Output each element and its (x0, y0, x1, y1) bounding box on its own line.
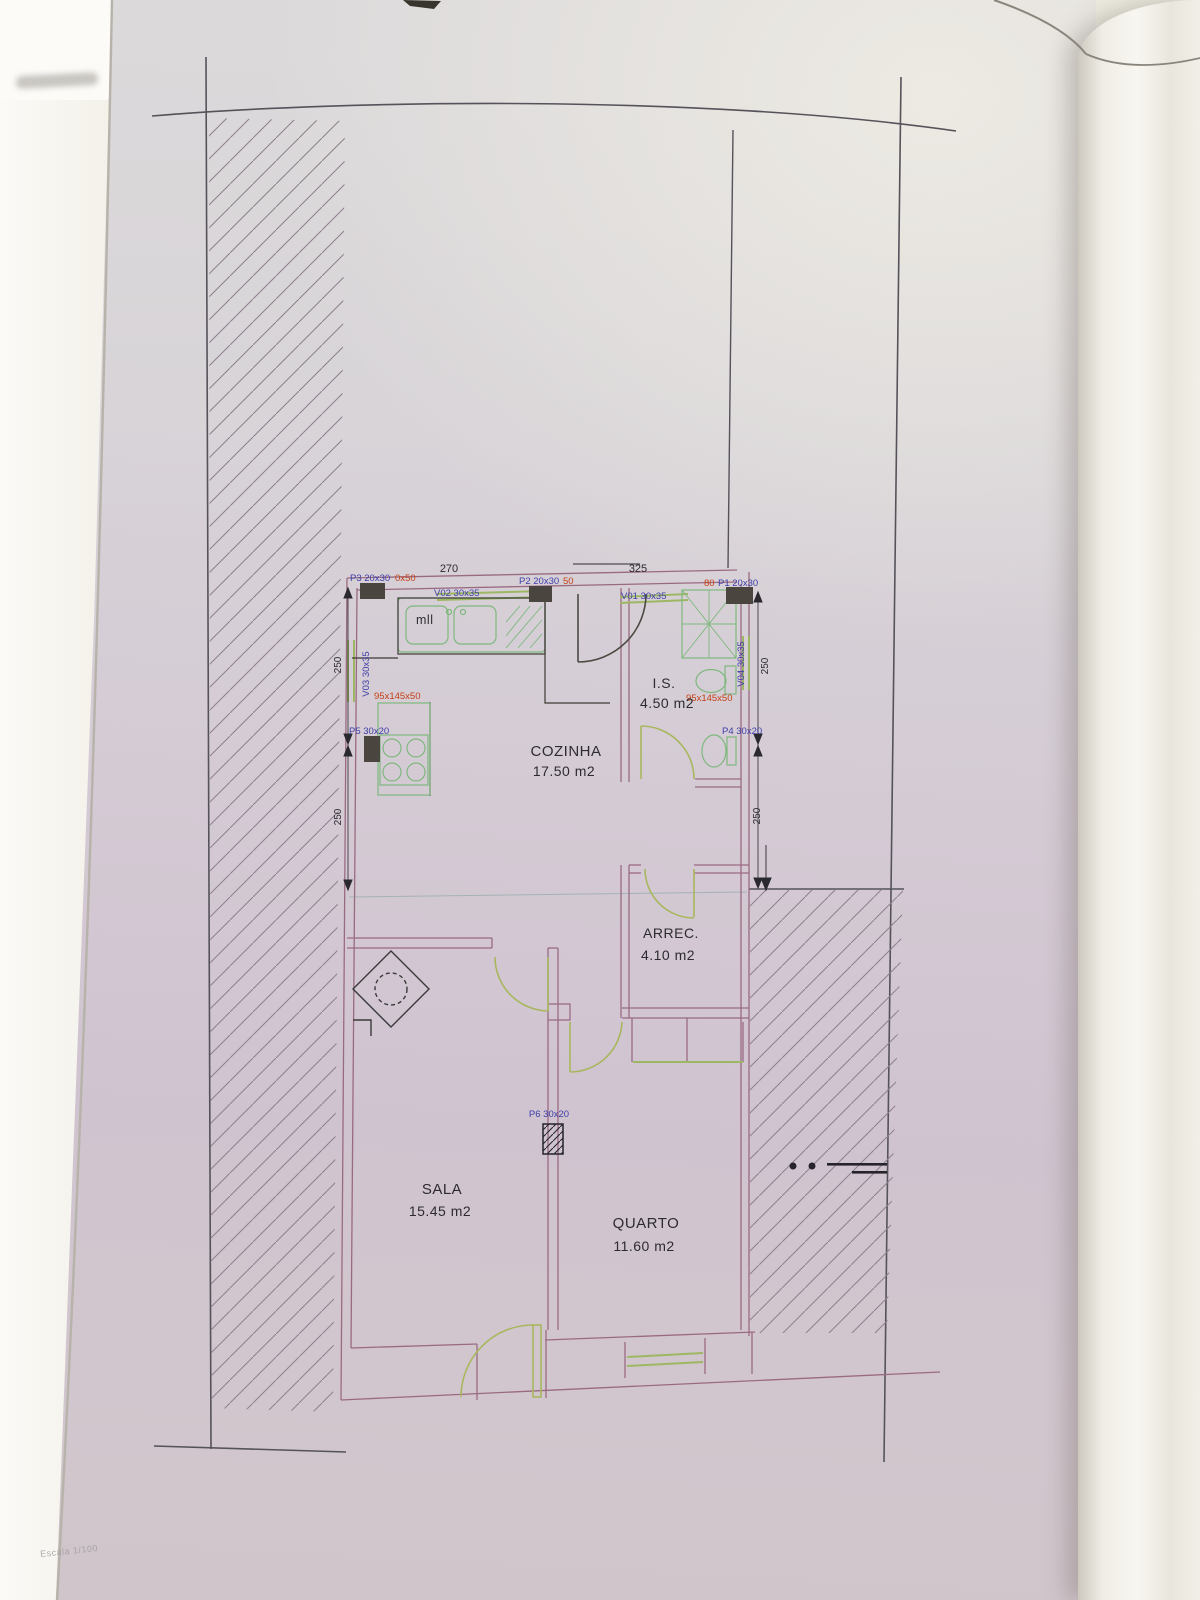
pillar-p2 (529, 586, 552, 602)
stove (378, 703, 430, 795)
room-cozinha: COZINHA (531, 743, 602, 760)
label-v04: V04 30x35 (736, 641, 747, 686)
pillar-p3 (360, 583, 385, 599)
room-cozinha-area: 17.50 m2 (533, 763, 595, 779)
left-hatch-strip (209, 118, 345, 1412)
label-p5: P5 30x20 (349, 726, 389, 737)
label-p6: P6 30x20 (529, 1109, 569, 1120)
label-p3-red: 0x50 (395, 573, 416, 584)
label-v02: V02 30x35 (434, 588, 479, 599)
room-is: I.S. (652, 675, 675, 691)
fixtures (352, 583, 753, 1154)
dim-250-left-upper: 250 (333, 656, 344, 673)
fireplace (353, 951, 429, 1036)
pillar-p5 (364, 736, 380, 762)
label-p2-red: 50 (563, 576, 574, 587)
dimension-marks (344, 564, 771, 890)
door-is (641, 726, 694, 779)
washbasin (702, 735, 736, 767)
door-quarto (570, 1022, 622, 1072)
label-sink: mll (416, 613, 433, 627)
room-arrec-area: 4.10 m2 (641, 947, 695, 963)
room-quarto: QUARTO (613, 1215, 680, 1232)
window-quarto (627, 1362, 703, 1366)
room-quarto-area: 11.60 m2 (613, 1238, 674, 1254)
door-arrec (645, 869, 694, 918)
toilet (696, 666, 736, 694)
pillar-p1 (726, 587, 753, 604)
room-sala: SALA (422, 1181, 462, 1198)
right-hatch-block (750, 890, 903, 1333)
room-is-area: 4.50 m2 (640, 695, 694, 711)
label-kitchen-unit: 95x145x50 (374, 691, 420, 702)
label-p1-red: 80 (704, 578, 715, 589)
door-exterior-sala (461, 1325, 541, 1397)
label-p4: P4 30x20 (722, 726, 762, 737)
label-v01: V01 30x35 (621, 591, 666, 602)
room-arrec: ARREC. (643, 925, 699, 941)
label-v03: V03 30x35 (361, 651, 372, 696)
label-p1: P1 20x30 (718, 578, 758, 589)
dim-250-right-lower: 250 (752, 807, 763, 824)
pillar-p6 (543, 1124, 563, 1154)
room-labels: COZINHA 17.50 m2 I.S. 4.50 m2 ARREC. 4.1… (409, 675, 699, 1254)
label-p2: P2 20x30 (519, 576, 559, 587)
dim-250-right-upper: 250 (760, 657, 771, 674)
photographed-floor-plan: P3 20x30 0x50 270 P2 20x30 50 325 80 P1 … (0, 0, 1200, 1600)
binding-mark (403, 0, 441, 9)
doors (461, 594, 694, 1397)
label-p3: P3 20x30 (350, 573, 390, 584)
floor-plan-drawing: P3 20x30 0x50 270 P2 20x30 50 325 80 P1 … (0, 0, 1200, 1600)
door-kitchen (578, 594, 646, 662)
room-sala-area: 15.45 m2 (409, 1203, 471, 1219)
dim-250-left-lower: 250 (333, 808, 344, 825)
door-sala (495, 957, 548, 1011)
dim-270: 270 (440, 563, 458, 575)
dim-325: 325 (629, 563, 647, 575)
